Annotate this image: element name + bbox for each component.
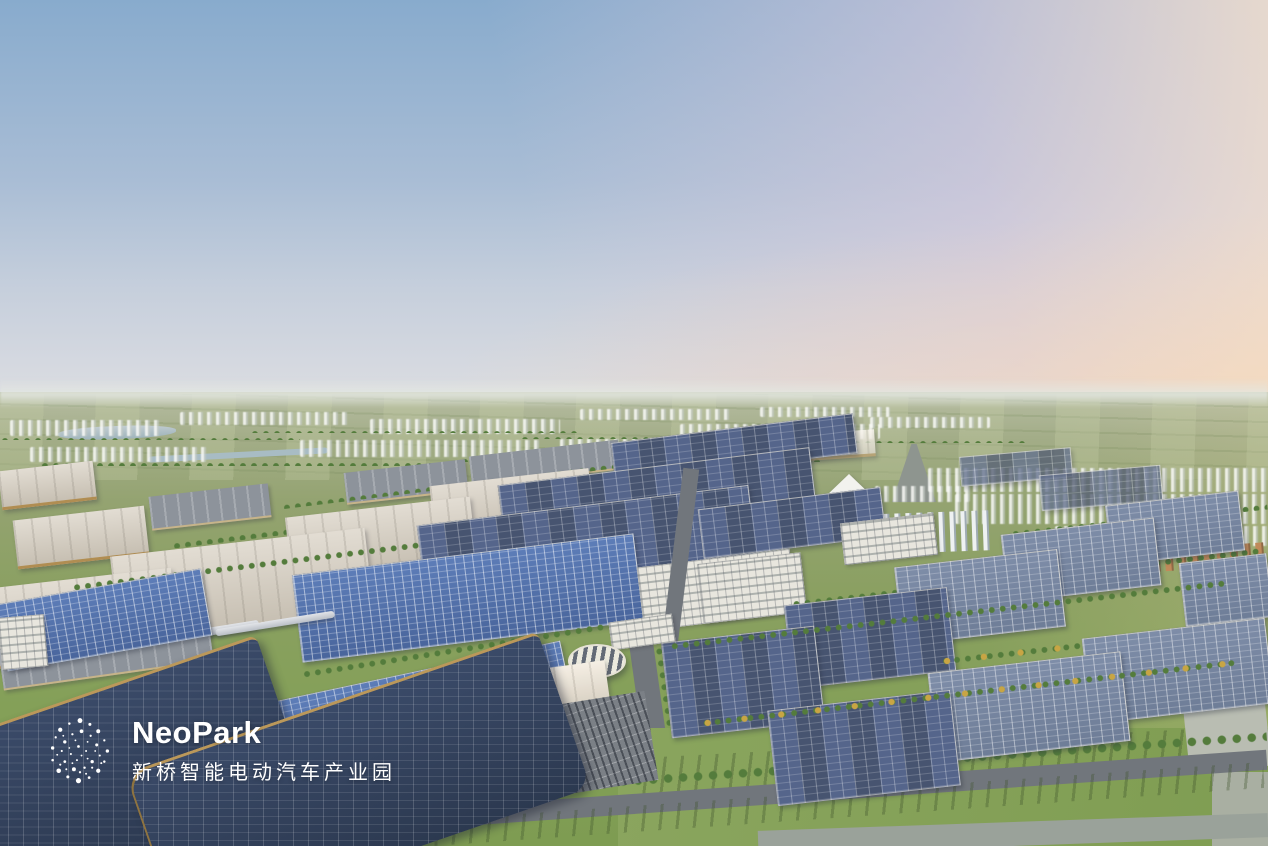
brand-name: NeoPark — [132, 717, 396, 750]
village-cluster — [580, 409, 730, 420]
village-cluster — [760, 407, 890, 417]
village-cluster — [30, 447, 210, 462]
dot-sphere-logo-icon — [42, 710, 118, 792]
sunset-sky — [0, 0, 1268, 402]
aerial-render-scene: NeoPark 新桥智能电动汽车产业园 — [0, 0, 1268, 846]
village-cluster — [10, 420, 160, 436]
tree-line — [0, 436, 300, 440]
distant-city — [875, 486, 970, 502]
tree-line — [40, 461, 440, 466]
parking-structure — [0, 614, 48, 670]
brand-subtitle: 新桥智能电动汽车产业园 — [132, 756, 396, 785]
logo-text-block: NeoPark 新桥智能电动汽车产业园 — [132, 717, 396, 786]
village-cluster — [180, 412, 350, 425]
neopark-logo: NeoPark 新桥智能电动汽车产业园 — [42, 710, 396, 792]
tree-line — [250, 429, 580, 433]
horizon-haze — [0, 378, 1268, 408]
village-cluster — [870, 417, 990, 428]
